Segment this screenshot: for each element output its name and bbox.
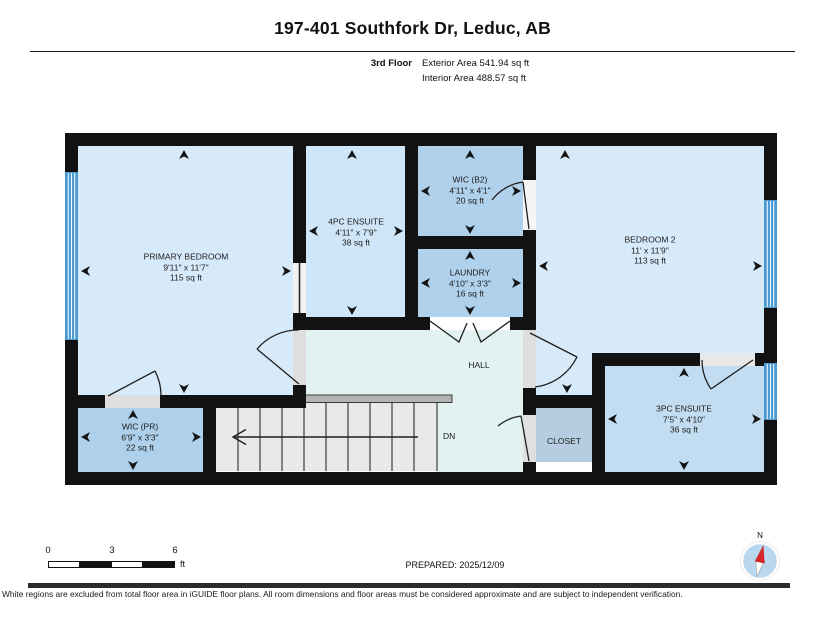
room-label-closet: CLOSET: [547, 436, 581, 447]
scale-tick-6: 6: [167, 545, 183, 556]
room-label-wic-pr: WIC (PR) 6'9" x 3'3" 22 sq ft: [121, 421, 158, 453]
room-label-primary-bedroom: PRIMARY BEDROOM 9'11" x 11'7" 115 sq ft: [144, 251, 229, 283]
scale-unit: ft: [180, 559, 185, 569]
floor-plan-graphic: [0, 0, 825, 638]
room-label-bedroom-2: BEDROOM 2 11' x 11'9" 113 sq ft: [624, 234, 675, 266]
compass-icon: [740, 541, 780, 581]
floor-plan-page: 197-401 Southfork Dr, Leduc, AB 3rd Floo…: [0, 0, 825, 638]
stairs-down-label: DN: [443, 431, 455, 441]
scale-tick-0: 0: [40, 545, 56, 556]
disclaimer-text: White regions are excluded from total fl…: [2, 589, 822, 599]
room-label-wic-b2: WIC (B2) 4'11" x 4'1" 20 sq ft: [449, 174, 490, 206]
room-label-3pc-ensuite: 3PC ENSUITE 7'5" x 4'10" 36 sq ft: [656, 403, 712, 435]
room-label-4pc-ensuite: 4PC ENSUITE 4'11" x 7'9" 38 sq ft: [328, 216, 384, 248]
footer-divider: [28, 583, 790, 588]
prepared-date: PREPARED: 2025/12/09: [355, 560, 555, 570]
room-label-laundry: LAUNDRY 4'10" x 3'3" 16 sq ft: [449, 267, 491, 299]
compass-north-label: N: [752, 531, 768, 540]
scale-tick-3: 3: [104, 545, 120, 556]
room-label-hall: HALL: [468, 360, 489, 371]
scale-bar: [48, 561, 175, 568]
stair-railing: [302, 395, 452, 403]
